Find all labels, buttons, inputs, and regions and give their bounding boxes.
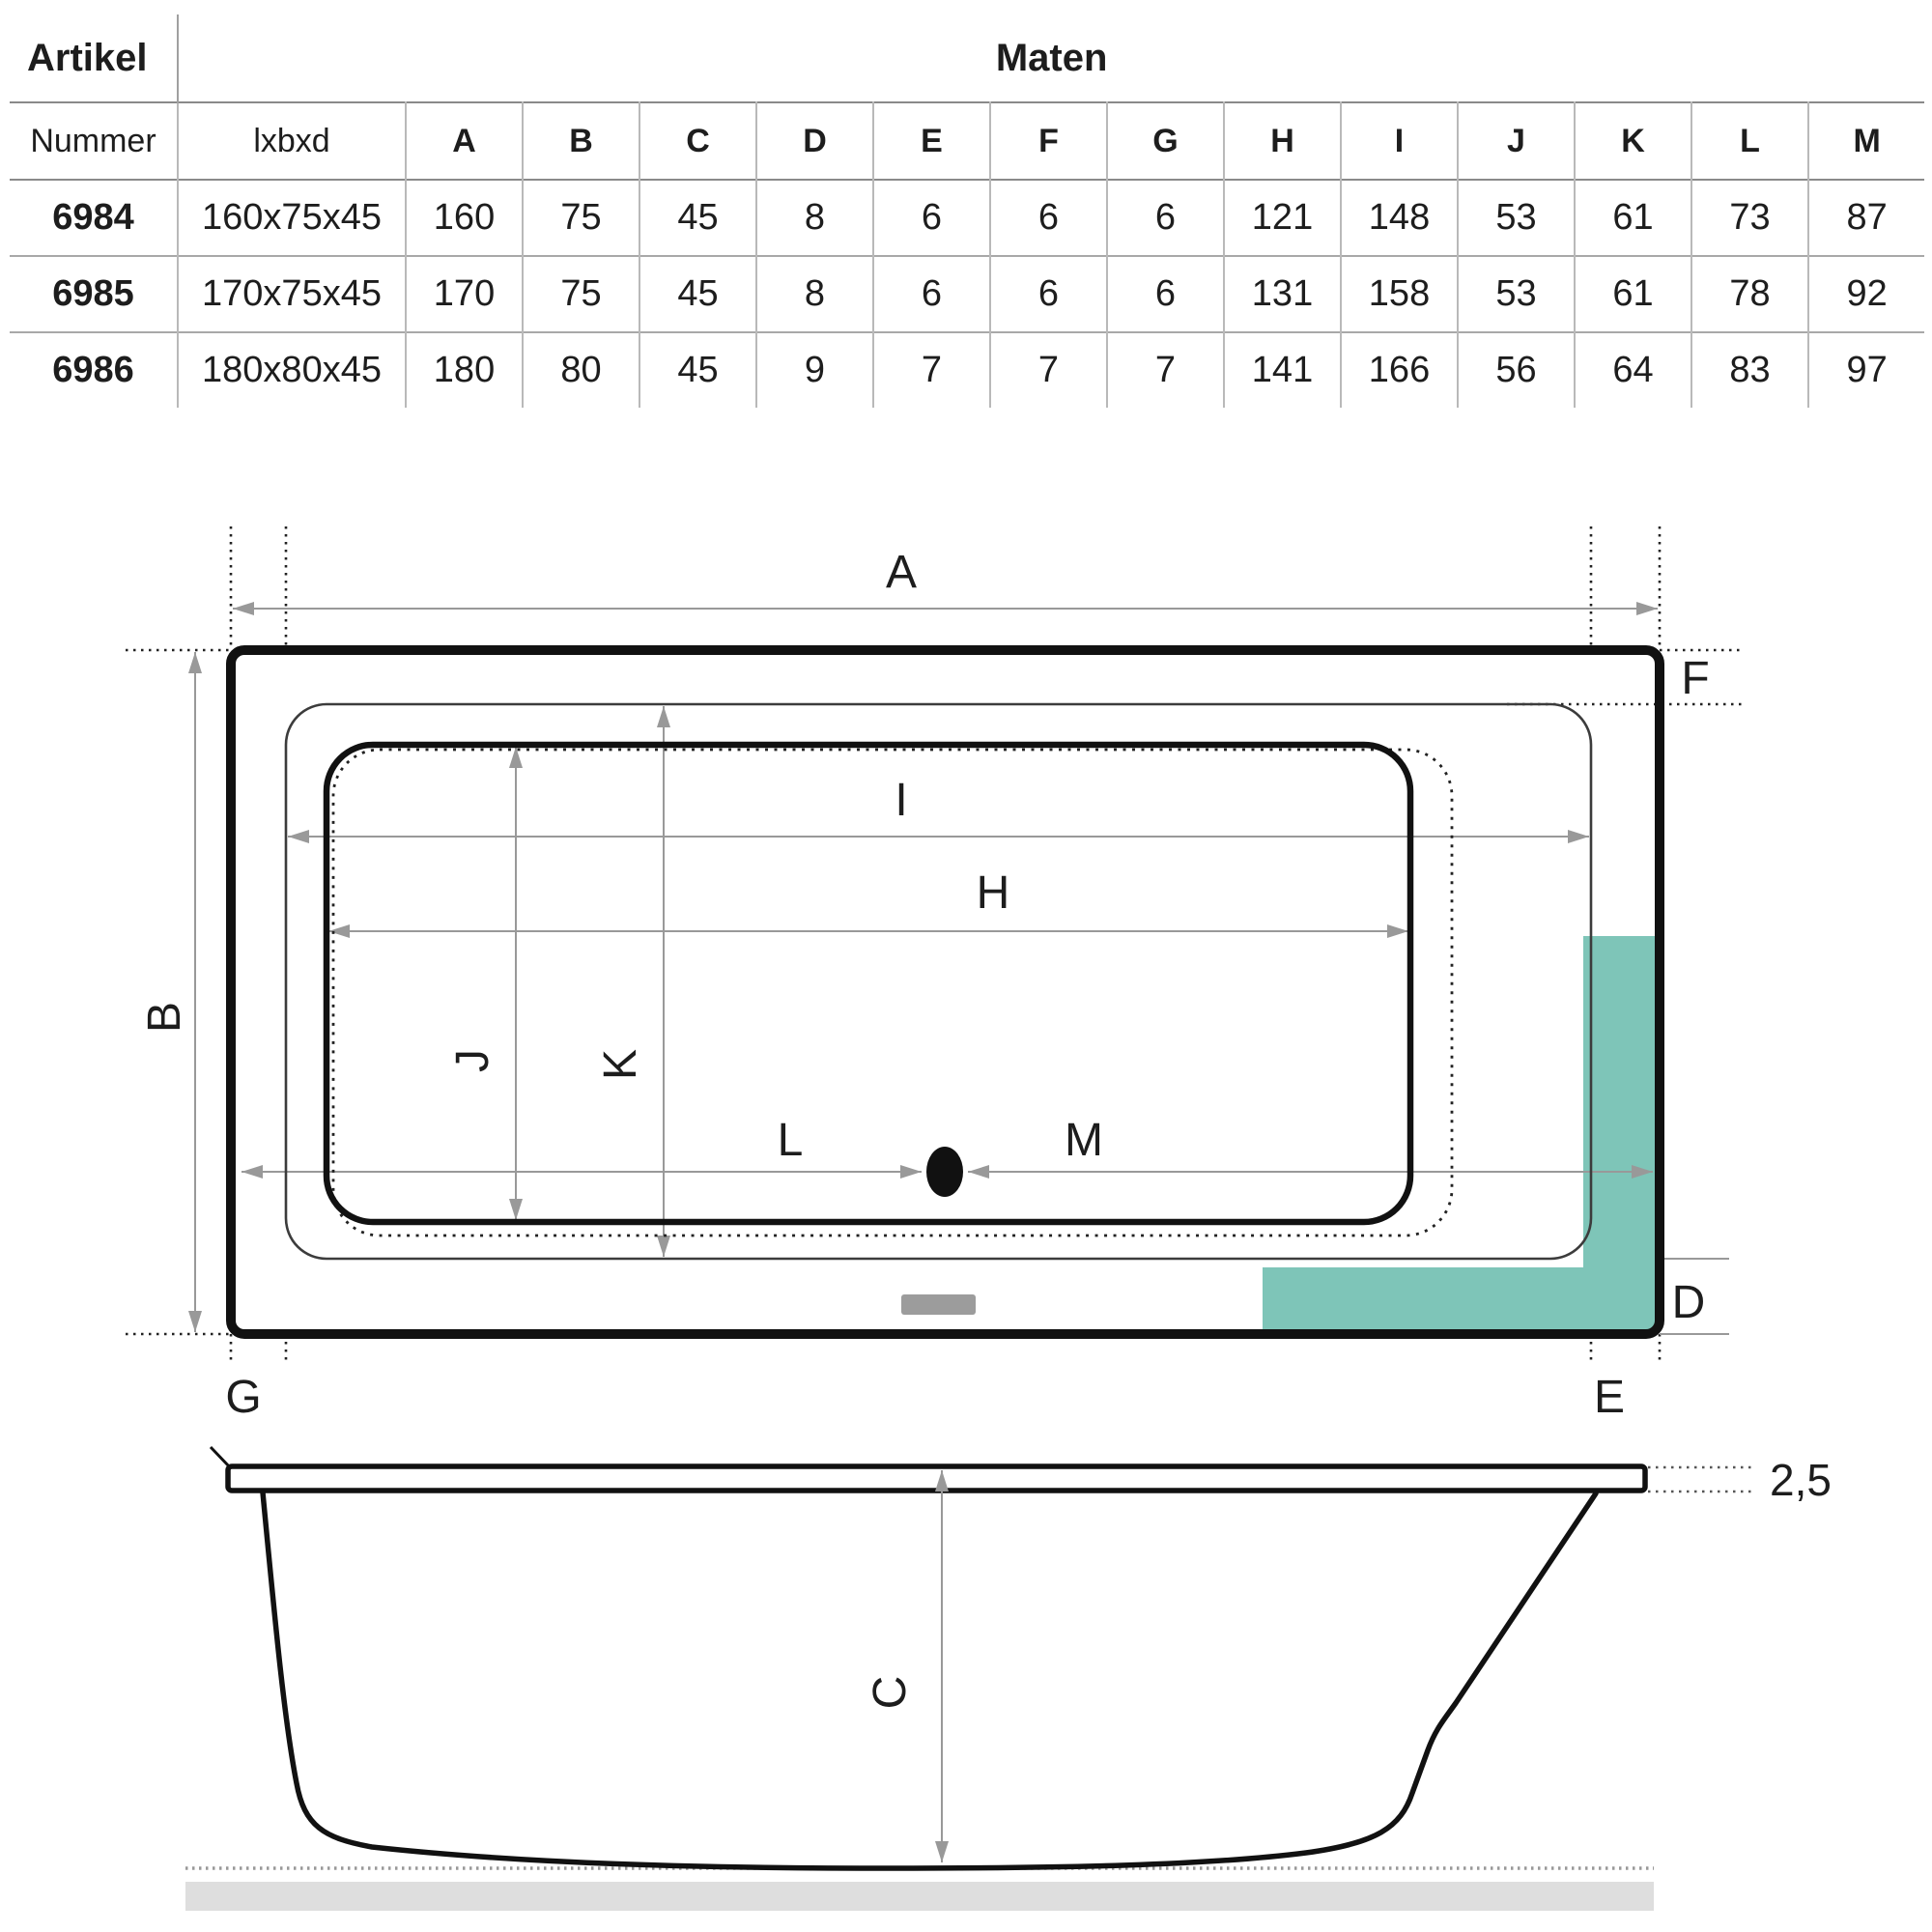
ground-shadow	[185, 1882, 1654, 1911]
label-B: B	[139, 1002, 190, 1033]
basin-waterline-dashed	[333, 750, 1452, 1236]
dimension-lines	[195, 609, 1729, 1334]
label-F: F	[1681, 653, 1709, 704]
label-C: C	[865, 1676, 916, 1710]
tub-outer-edge	[231, 650, 1660, 1334]
basin-top-edge	[327, 745, 1410, 1222]
label-E: E	[1594, 1372, 1625, 1423]
top-view: A B F I H J K L M G E D	[126, 526, 1744, 1423]
label-H: H	[977, 867, 1010, 919]
label-K: K	[595, 1049, 646, 1080]
label-rim-thickness: 2,5	[1770, 1455, 1832, 1505]
label-M: M	[1065, 1115, 1103, 1166]
label-D: D	[1672, 1277, 1706, 1328]
label-J: J	[447, 1049, 498, 1072]
label-G: G	[225, 1372, 261, 1423]
rim-slab	[228, 1466, 1645, 1491]
bathtub-technical-drawing: A B F I H J K L M G E D C 2,5	[0, 0, 1932, 1932]
overflow-slot	[901, 1294, 976, 1315]
drain-icon	[926, 1147, 963, 1197]
side-view: C 2,5	[185, 1447, 1832, 1911]
rim-left-tick	[211, 1447, 230, 1467]
label-L: L	[778, 1115, 804, 1166]
label-A: A	[886, 547, 917, 598]
teal-highlight	[1263, 936, 1655, 1329]
tub-profile	[263, 1492, 1596, 1868]
label-I: I	[895, 775, 907, 826]
